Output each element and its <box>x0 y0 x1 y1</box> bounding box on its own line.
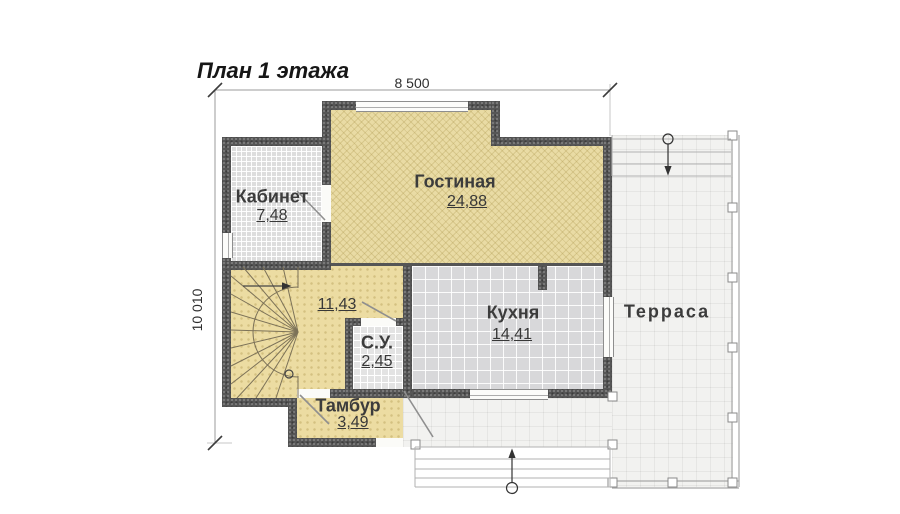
vestibule-area: 3,49 <box>337 414 368 432</box>
kitchen-label: Кухня <box>487 303 540 324</box>
dimension-lines <box>207 84 610 443</box>
entrance-door-leaf <box>404 391 433 437</box>
terrace-steps-top-arrow <box>663 134 673 172</box>
hall-area: 11,43 <box>318 296 357 314</box>
office-area: 7,48 <box>256 207 287 225</box>
plan-linework <box>0 0 900 514</box>
bathroom-area: 2,45 <box>361 353 392 371</box>
living-room-label: Гостиная <box>414 172 495 193</box>
bathroom-label: С.У. <box>361 333 393 354</box>
dimension-height: 10 010 <box>189 289 205 332</box>
terrace-steps-top <box>612 135 731 176</box>
plan-title: План 1 этажа <box>197 58 349 84</box>
living-room-area: 24,88 <box>447 193 487 211</box>
bathroom-door-leaf <box>362 302 396 321</box>
terrace-label: Терраса <box>624 302 710 323</box>
dimension-tick-marks <box>208 83 617 450</box>
office-label: Кабинет <box>236 187 309 208</box>
dimension-width: 8 500 <box>394 75 429 91</box>
kitchen-area: 14,41 <box>492 326 532 344</box>
floor-plan: План 1 этажа 8 500 10 010 Кабинет 7,48 Г… <box>0 0 900 514</box>
